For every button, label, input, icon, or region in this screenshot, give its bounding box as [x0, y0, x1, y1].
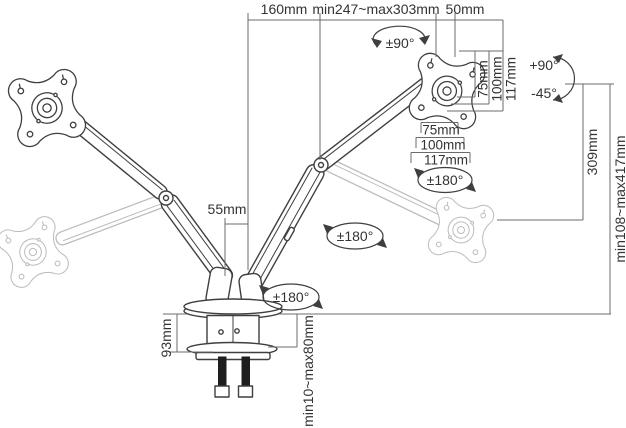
- vesa-bottom-dim-100: 100mm: [420, 138, 465, 153]
- rotation-label-swivel: ±90°: [386, 35, 415, 51]
- vesa-bottom-dim-117: 117mm: [424, 153, 468, 168]
- dim-label-reach-segment: 160mm: [261, 1, 308, 17]
- diagram-canvas: 160mm min247~max303mm 50mm 55mm ±90° ±18…: [0, 0, 626, 428]
- clamp-bolt-right: [242, 357, 250, 387]
- dim-label-desk-thickness: min10~max80mm: [300, 315, 316, 427]
- dim-label-clamp-height: 93mm: [158, 319, 174, 358]
- dim-label-height-range: min108~max417mm: [612, 135, 626, 262]
- rotation-label-tilt-down: -45°: [531, 85, 557, 101]
- rotation-label-pan-elbow: ±180°: [337, 228, 374, 244]
- dimension-labels: 160mm min247~max303mm 50mm 55mm ±90° ±18…: [158, 1, 626, 427]
- vesa-plate-left: [6, 67, 87, 148]
- ghost-arm-left: [0, 192, 171, 290]
- dim-label-reach-range: min247~max303mm: [312, 1, 439, 17]
- rotation-arrows: [259, 26, 574, 310]
- clamp-bolt-left: [219, 357, 227, 387]
- vesa-side-dim-75: 75mm: [476, 60, 491, 98]
- rotation-label-tilt-up: +90°: [529, 57, 558, 73]
- vesa-side-dim-100: 100mm: [490, 56, 505, 101]
- vesa-bottom-dim-75: 75mm: [422, 123, 460, 138]
- rotation-label-pan-vesa: ±180°: [427, 172, 464, 188]
- dim-label-drop: 309mm: [584, 129, 600, 176]
- dim-label-vesa-offset: 50mm: [446, 1, 485, 17]
- desk-clamp-base: [184, 266, 282, 397]
- ghost-vesa-plate-right: [426, 195, 495, 264]
- dim-label-arm-gap: 55mm: [208, 201, 247, 217]
- rotation-label-pan-base: ±180°: [273, 289, 310, 305]
- monitor-arm-technical-diagram: 160mm min247~max303mm 50mm 55mm ±90° ±18…: [0, 0, 626, 428]
- ghost-vesa-plate-left: [0, 214, 71, 291]
- vesa-side-dim-117: 117mm: [504, 57, 519, 101]
